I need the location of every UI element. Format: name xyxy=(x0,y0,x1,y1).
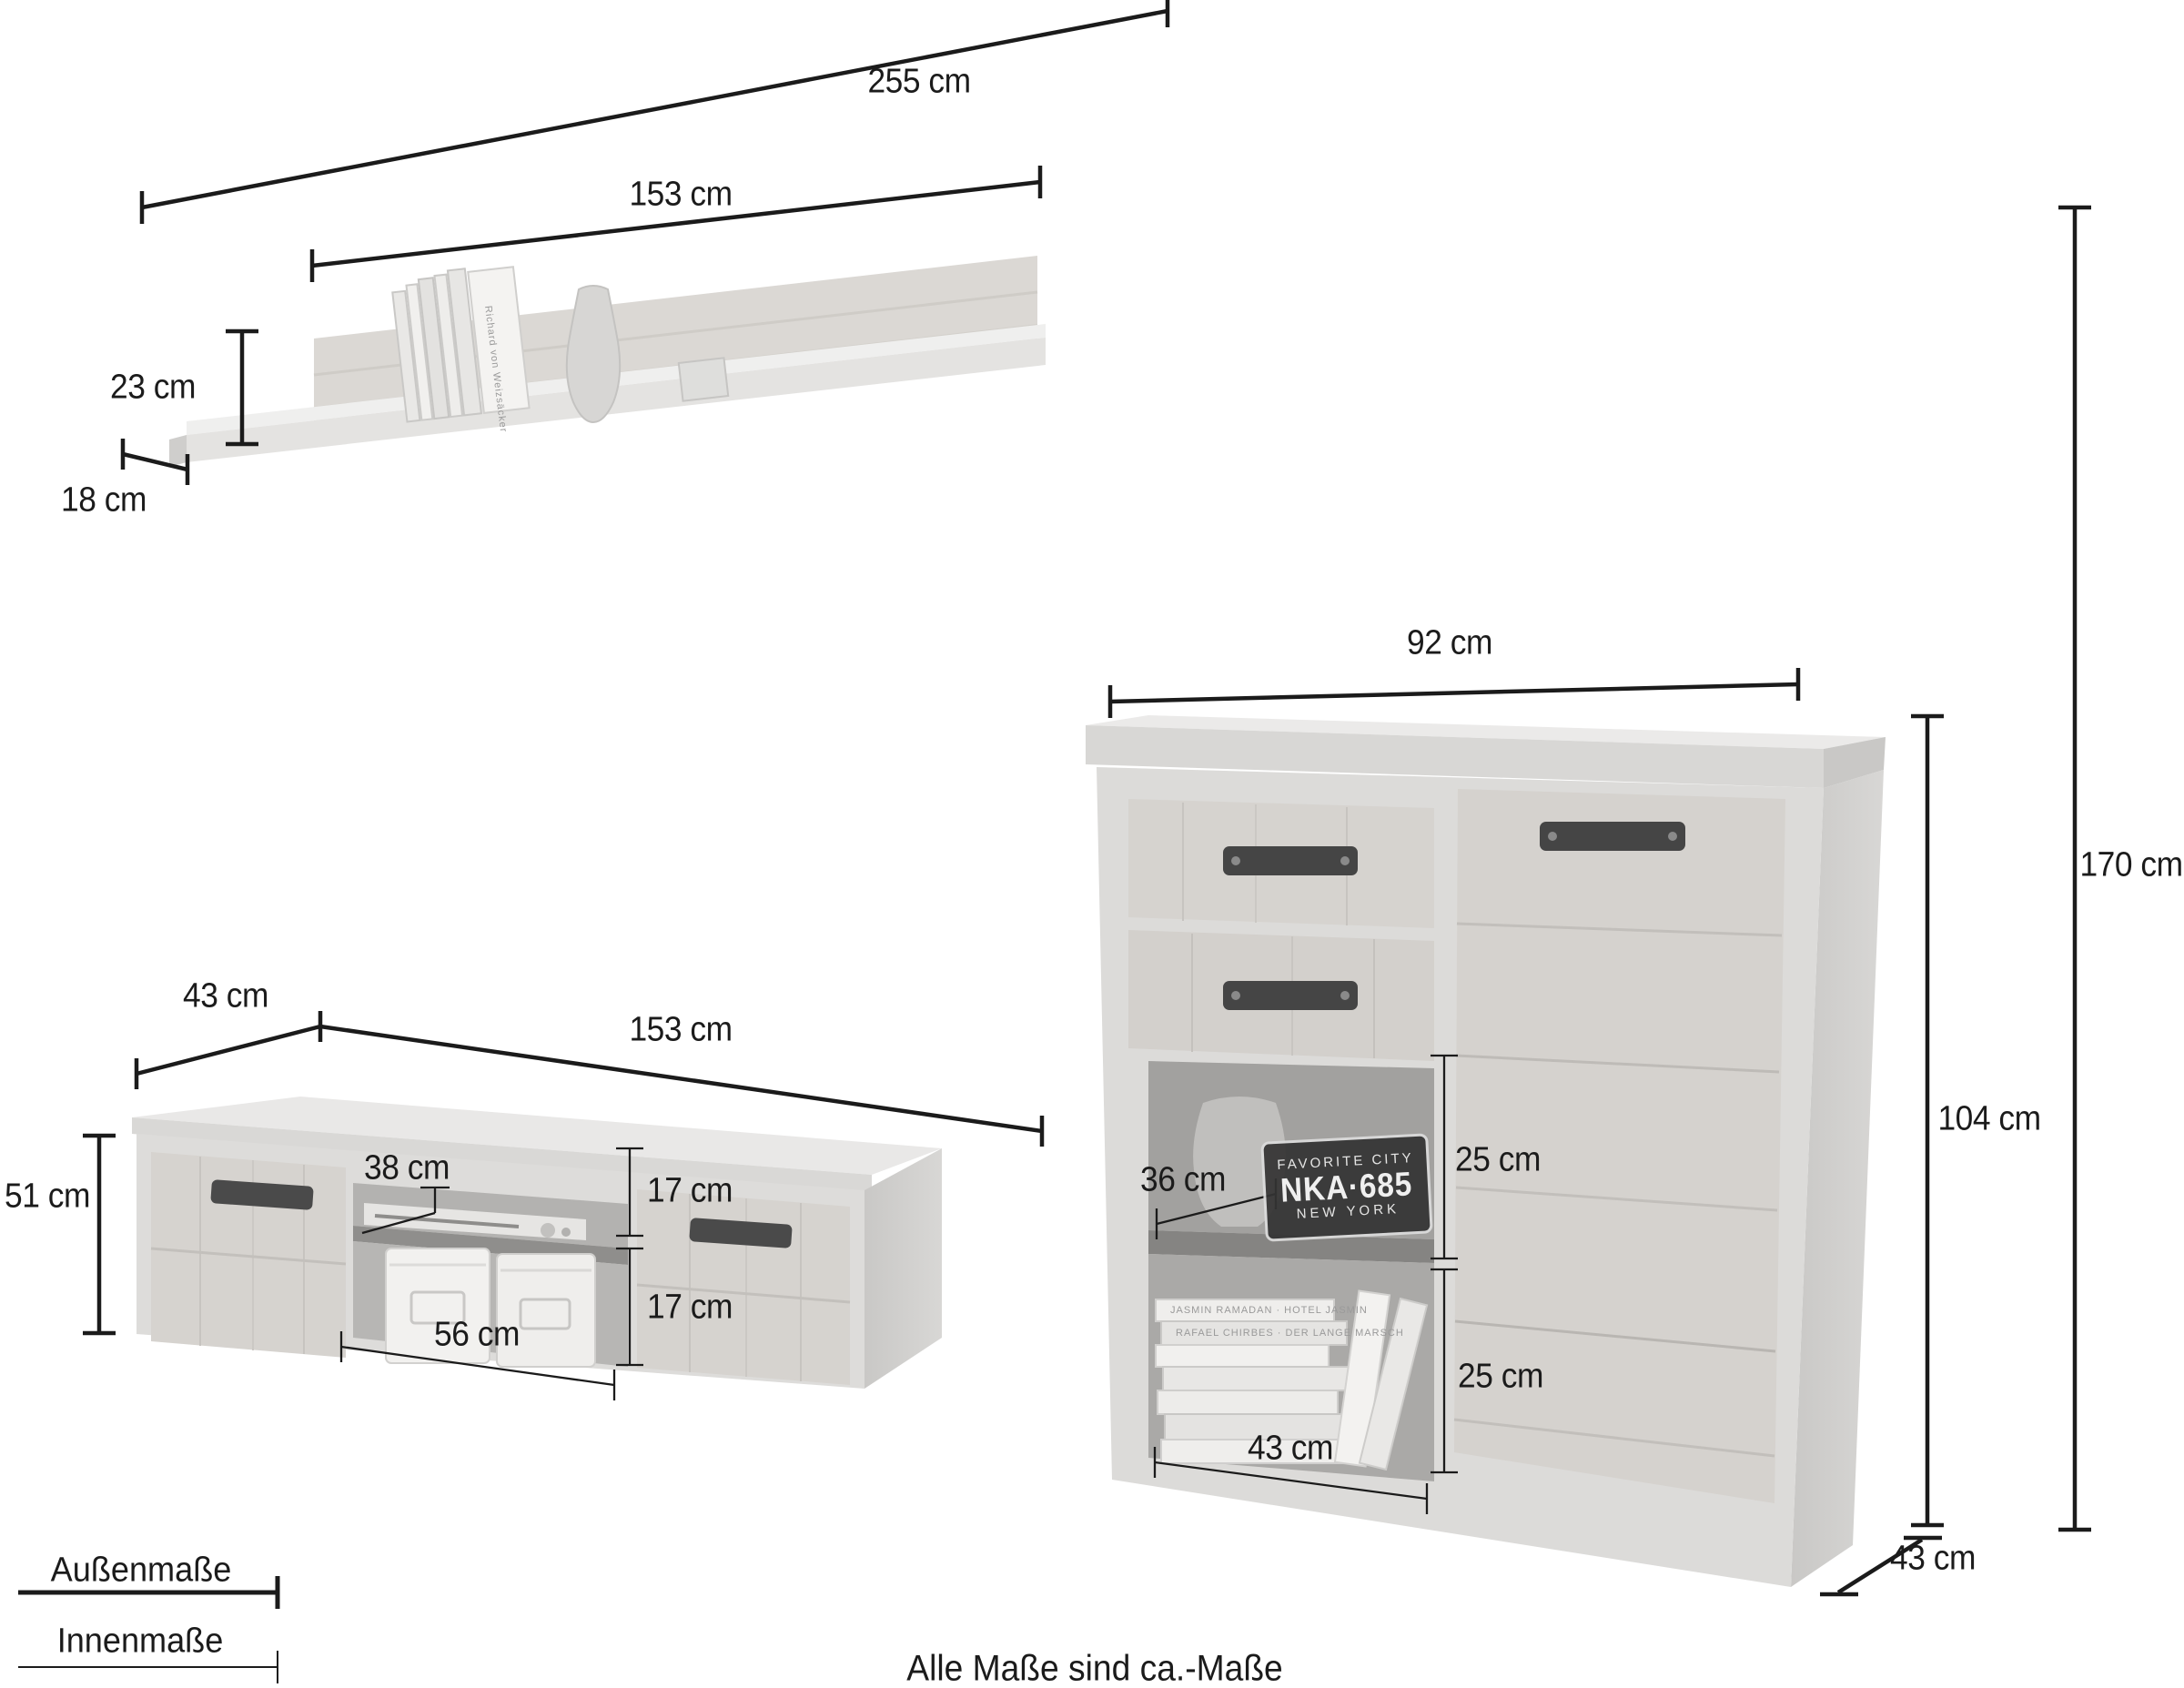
dim-label-lowboard-inner-lower: 17 cm xyxy=(647,1289,733,1328)
legend-outer-label: Außenmaße xyxy=(51,1552,232,1591)
dim-label-lowboard-width: 153 cm xyxy=(629,1011,732,1050)
highboard-door-handle xyxy=(1540,822,1685,851)
shelf-box xyxy=(679,358,728,400)
shelf-vase xyxy=(567,286,620,422)
dim-label-highboard-inner-width: 36 cm xyxy=(1140,1161,1226,1200)
dim-label-highboard-inner-upper: 25 cm xyxy=(1455,1141,1541,1180)
dim-label-lowboard-inner-upper: 17 cm xyxy=(647,1172,733,1211)
dim-label-highboard-inner-lower: 25 cm xyxy=(1458,1358,1543,1397)
dim-line-lowboard-depth xyxy=(136,1026,320,1089)
dim-line-lowboard-height xyxy=(83,1136,116,1333)
shelf-board-left-cap xyxy=(169,435,187,467)
highboard-drawer-2-handle xyxy=(1223,981,1358,1010)
dim-label-highboard-width: 92 cm xyxy=(1407,624,1492,663)
dim-label-lowboard-inner-bottom: 56 cm xyxy=(434,1316,520,1355)
dim-label-total-width: 255 cm xyxy=(867,63,970,102)
dim-label-shelf-height: 23 cm xyxy=(110,369,196,408)
dimension-diagram: FAVORITE CITY NKA·685 NEW YORK JASMIN RA… xyxy=(0,0,2184,1688)
book-spine-text-1: JASMIN RAMADAN · HOTEL JASMIN xyxy=(1170,1305,1368,1316)
dim-label-shelf-width: 153 cm xyxy=(629,176,732,215)
dim-label-total-height: 170 cm xyxy=(2079,846,2182,885)
dim-label-highboard-inner-bottom: 43 cm xyxy=(1248,1430,1333,1469)
scene-graphics xyxy=(0,0,2184,1688)
legend-inner-label: Innenmaße xyxy=(57,1622,224,1662)
book-spine-text-2: RAFAEL CHIRBES · DER LANGE MARSCH xyxy=(1176,1328,1404,1339)
dim-label-lowboard-inner-top: 38 cm xyxy=(364,1149,450,1188)
wall-shelf-photo xyxy=(169,256,1046,467)
approx-dimensions-note: Alle Maße sind ca.-Maße xyxy=(906,1649,1282,1688)
lowboard-photo xyxy=(132,1097,942,1389)
dim-label-lowboard-height: 51 cm xyxy=(5,1178,90,1217)
dim-label-highboard-height: 104 cm xyxy=(1937,1100,2040,1139)
highboard-drawer-1-handle xyxy=(1223,846,1358,875)
dim-line-highboard-width xyxy=(1110,668,1798,718)
license-plate: FAVORITE CITY NKA·685 NEW YORK xyxy=(1260,1133,1433,1241)
license-plate-number: NKA·685 xyxy=(1280,1167,1414,1208)
dim-label-highboard-depth: 43 cm xyxy=(1890,1540,1976,1579)
dim-label-shelf-depth: 18 cm xyxy=(61,481,147,521)
dim-label-lowboard-depth: 43 cm xyxy=(183,977,268,1016)
shelf-books xyxy=(390,263,529,421)
lowboard-side-face xyxy=(864,1148,942,1389)
